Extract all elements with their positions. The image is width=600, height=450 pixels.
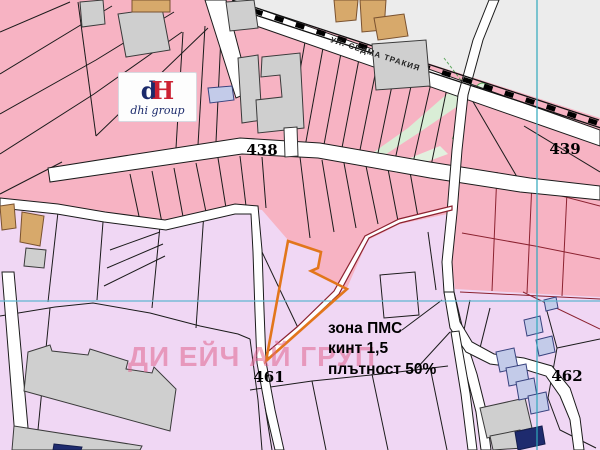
building-tan xyxy=(20,212,44,246)
building-tan xyxy=(0,204,16,230)
dhi-group-logo: dH dhi group xyxy=(118,72,197,122)
building-gray xyxy=(226,0,258,31)
building-gray xyxy=(118,8,170,57)
building-blue xyxy=(536,336,555,356)
logo-mark-h: H xyxy=(152,76,175,105)
parcel-label-439: 439 xyxy=(549,140,580,158)
parcel-label-461: 461 xyxy=(253,368,284,386)
building-tan xyxy=(374,14,408,40)
parcel-label-438: 438 xyxy=(246,141,277,159)
zone-annotation-line1: зона ПМС xyxy=(328,320,402,337)
building-blue xyxy=(524,316,543,336)
logo-mark: dH xyxy=(141,79,174,103)
zone-annotation-line3: плътност 50% xyxy=(328,361,436,378)
building-outline xyxy=(284,127,298,157)
parcel-label-462: 462 xyxy=(551,367,582,385)
building-tan xyxy=(334,0,358,22)
building-blue xyxy=(544,297,558,311)
zone-annotation-line2: кинт 1,5 xyxy=(328,340,388,357)
map-canvas[interactable]: ДИ ЕЙЧ АЙ ГРУП УЛ. СЕДМА ТРАКИЯ 438 439 … xyxy=(0,0,600,450)
building-tan xyxy=(132,0,170,12)
building-gray xyxy=(80,0,105,27)
building-blue xyxy=(528,392,549,414)
building-blue xyxy=(208,86,234,103)
logo-name: dhi group xyxy=(130,105,184,116)
building-gray xyxy=(24,248,46,268)
zoning-map: ДИ ЕЙЧ АЙ ГРУП УЛ. СЕДМА ТРАКИЯ 438 439 … xyxy=(0,0,600,450)
